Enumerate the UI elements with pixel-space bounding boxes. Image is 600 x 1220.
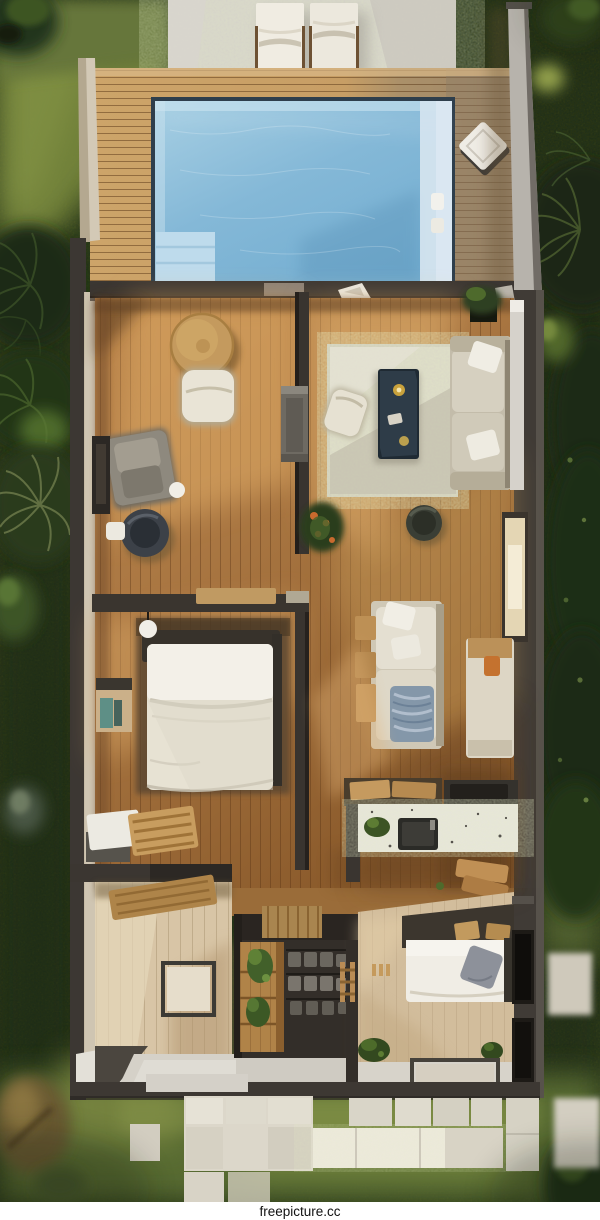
svg-text:freepicture.cc: freepicture.cc bbox=[259, 1204, 340, 1219]
